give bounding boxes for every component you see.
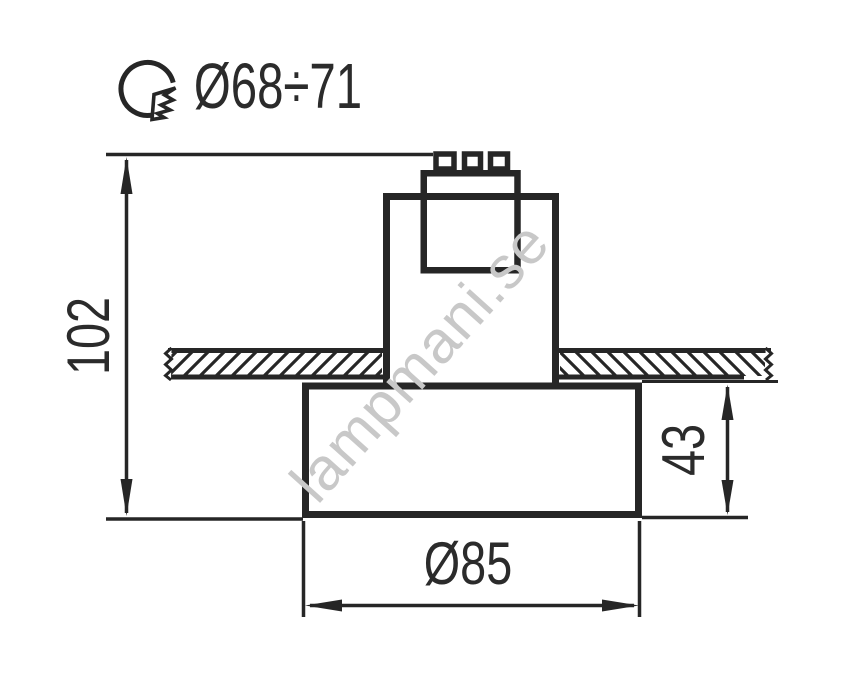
hole-cutout-icon (121, 62, 176, 119)
ceiling-section-left (166, 348, 384, 380)
arrow-right-icon (602, 600, 639, 612)
arrow-up-icon (722, 385, 734, 421)
arrow-left-icon (305, 600, 342, 612)
break-line-left (166, 348, 172, 380)
trim-height-label: 43 (654, 424, 714, 476)
overall-height-label: 102 (59, 297, 119, 375)
hole-diameter-label: Ø68÷71 (194, 54, 362, 118)
drawing-canvas: Ø68÷71 102 43 Ø85 lampmani.se (0, 0, 844, 679)
arrow-up-icon (121, 157, 133, 194)
terminal-prongs (436, 154, 508, 169)
arrow-down-icon (722, 480, 734, 515)
ceiling-section-right (559, 348, 772, 380)
body-diameter-label: Ø85 (424, 534, 512, 594)
arrow-down-icon (121, 479, 133, 516)
break-line-right (766, 348, 772, 380)
